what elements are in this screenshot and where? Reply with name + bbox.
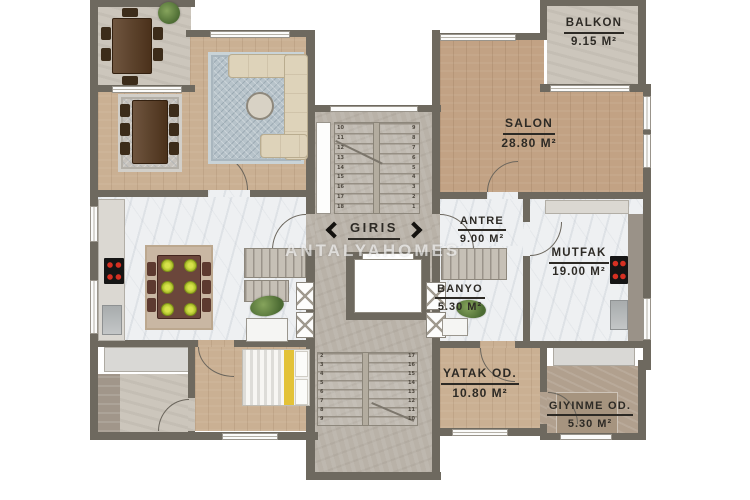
plate (161, 281, 174, 294)
room-name: YATAK OD. (441, 366, 519, 385)
sofa (260, 134, 308, 158)
plate (161, 303, 174, 316)
entrance-name: GIRIS (348, 220, 400, 240)
door-gap (208, 190, 250, 197)
chair (202, 280, 211, 294)
door-gap (487, 192, 518, 199)
chair (169, 123, 179, 136)
stair-step-numbers: 23456789 (320, 354, 323, 422)
shaft-box (296, 312, 314, 338)
room-label-yatak: YATAK OD. 10.80 m² (432, 366, 528, 401)
window (210, 31, 290, 38)
window (643, 298, 651, 340)
room-area: 28.80 m² (501, 136, 556, 152)
room-label-banyo: BANYO 5.30 m² (422, 282, 498, 315)
plate (161, 259, 174, 272)
bed-pillow (295, 351, 308, 377)
entrance-arrow-left-icon (326, 221, 343, 238)
stair-step-numbers: 101112131415161718 (337, 126, 344, 210)
wall (523, 199, 530, 341)
entrance-label: GIRIS (326, 220, 422, 240)
room-name: BANYO (435, 282, 485, 299)
closet-left (98, 374, 120, 432)
stairs-divider (362, 352, 369, 426)
door-gap (480, 341, 515, 348)
door-gap (523, 222, 530, 256)
window (643, 134, 651, 168)
room-label-antre: ANTRE 9.00 m² (440, 214, 524, 247)
bed-throw (284, 350, 294, 405)
room-area: 9.15 m² (571, 35, 617, 50)
window (560, 434, 612, 440)
room-label-salon: SALON 28.80 m² (483, 116, 575, 151)
room-area: 5.30 m² (438, 300, 482, 314)
room-label-giyinme: GIYINME OD. 5.30 m² (540, 399, 640, 432)
elevator-car (354, 259, 422, 313)
window (222, 433, 278, 440)
room-name: ANTRE (458, 214, 506, 231)
bed-blanket (243, 350, 285, 405)
window (90, 206, 98, 242)
window (440, 34, 516, 41)
chair (169, 142, 179, 155)
plant (158, 2, 180, 24)
window (90, 280, 98, 334)
room-area: 9.00 m² (460, 232, 504, 246)
plate (184, 259, 197, 272)
wall (90, 432, 318, 440)
appliance (246, 318, 288, 342)
sink (102, 305, 122, 335)
chair (101, 27, 111, 40)
stair-step-numbers: 1716151413121110 (408, 354, 415, 422)
chair (122, 76, 138, 85)
room-area: 5.30 m² (568, 417, 612, 431)
chair (120, 142, 130, 155)
room-label-balkon: BALKON 9.15 m² (550, 16, 638, 50)
chair (147, 298, 156, 312)
door-gap (188, 398, 195, 431)
bed-pillow (295, 379, 308, 405)
terrace-table (112, 18, 152, 74)
window (550, 85, 630, 92)
plate (184, 303, 197, 316)
room-name: MUTFAK (549, 246, 608, 264)
chair (202, 262, 211, 276)
room-area: 10.80 m² (452, 386, 507, 402)
watermark: ANTALYAHOMES (285, 241, 460, 261)
shaft-box (296, 282, 314, 310)
bath-fixture (442, 318, 468, 336)
stair-shaft-panel (316, 122, 331, 214)
chair (101, 48, 111, 61)
room-label-mutfak: MUTFAK 19.00 m² (534, 246, 624, 280)
dining-table (132, 100, 168, 164)
chair (169, 104, 179, 117)
wall (306, 472, 441, 480)
chair (202, 298, 211, 312)
chair (153, 48, 163, 61)
wall (98, 190, 306, 197)
window (452, 429, 508, 436)
chair (120, 104, 130, 117)
window (643, 96, 651, 130)
sink (610, 300, 628, 330)
chair (120, 123, 130, 136)
chair (147, 262, 156, 276)
chair (153, 27, 163, 40)
door-gap (198, 340, 234, 347)
room-area: 19.00 m² (552, 265, 605, 280)
coffee-table (246, 92, 274, 120)
stove (104, 258, 124, 284)
room-name: GIYINME OD. (547, 399, 633, 416)
wall (432, 341, 651, 348)
window (112, 86, 182, 93)
wall (540, 0, 547, 40)
wall (540, 0, 645, 6)
bath-counter-left (104, 347, 190, 372)
floor-plan: 101112131415161718 987654321 23456789 17… (0, 0, 750, 500)
room-name: BALKON (564, 16, 624, 34)
kitchen-counter (545, 200, 629, 214)
plate (184, 281, 197, 294)
room-name: SALON (503, 116, 555, 135)
chair (147, 280, 156, 294)
wall (432, 192, 651, 199)
wall (638, 0, 646, 90)
chair (122, 8, 138, 17)
window (330, 106, 418, 112)
kitchen-counter (628, 214, 643, 341)
stair-step-numbers: 987654321 (412, 126, 415, 210)
entrance-arrow-right-icon (405, 221, 422, 238)
wall (90, 0, 195, 7)
stairs-divider (373, 122, 380, 214)
